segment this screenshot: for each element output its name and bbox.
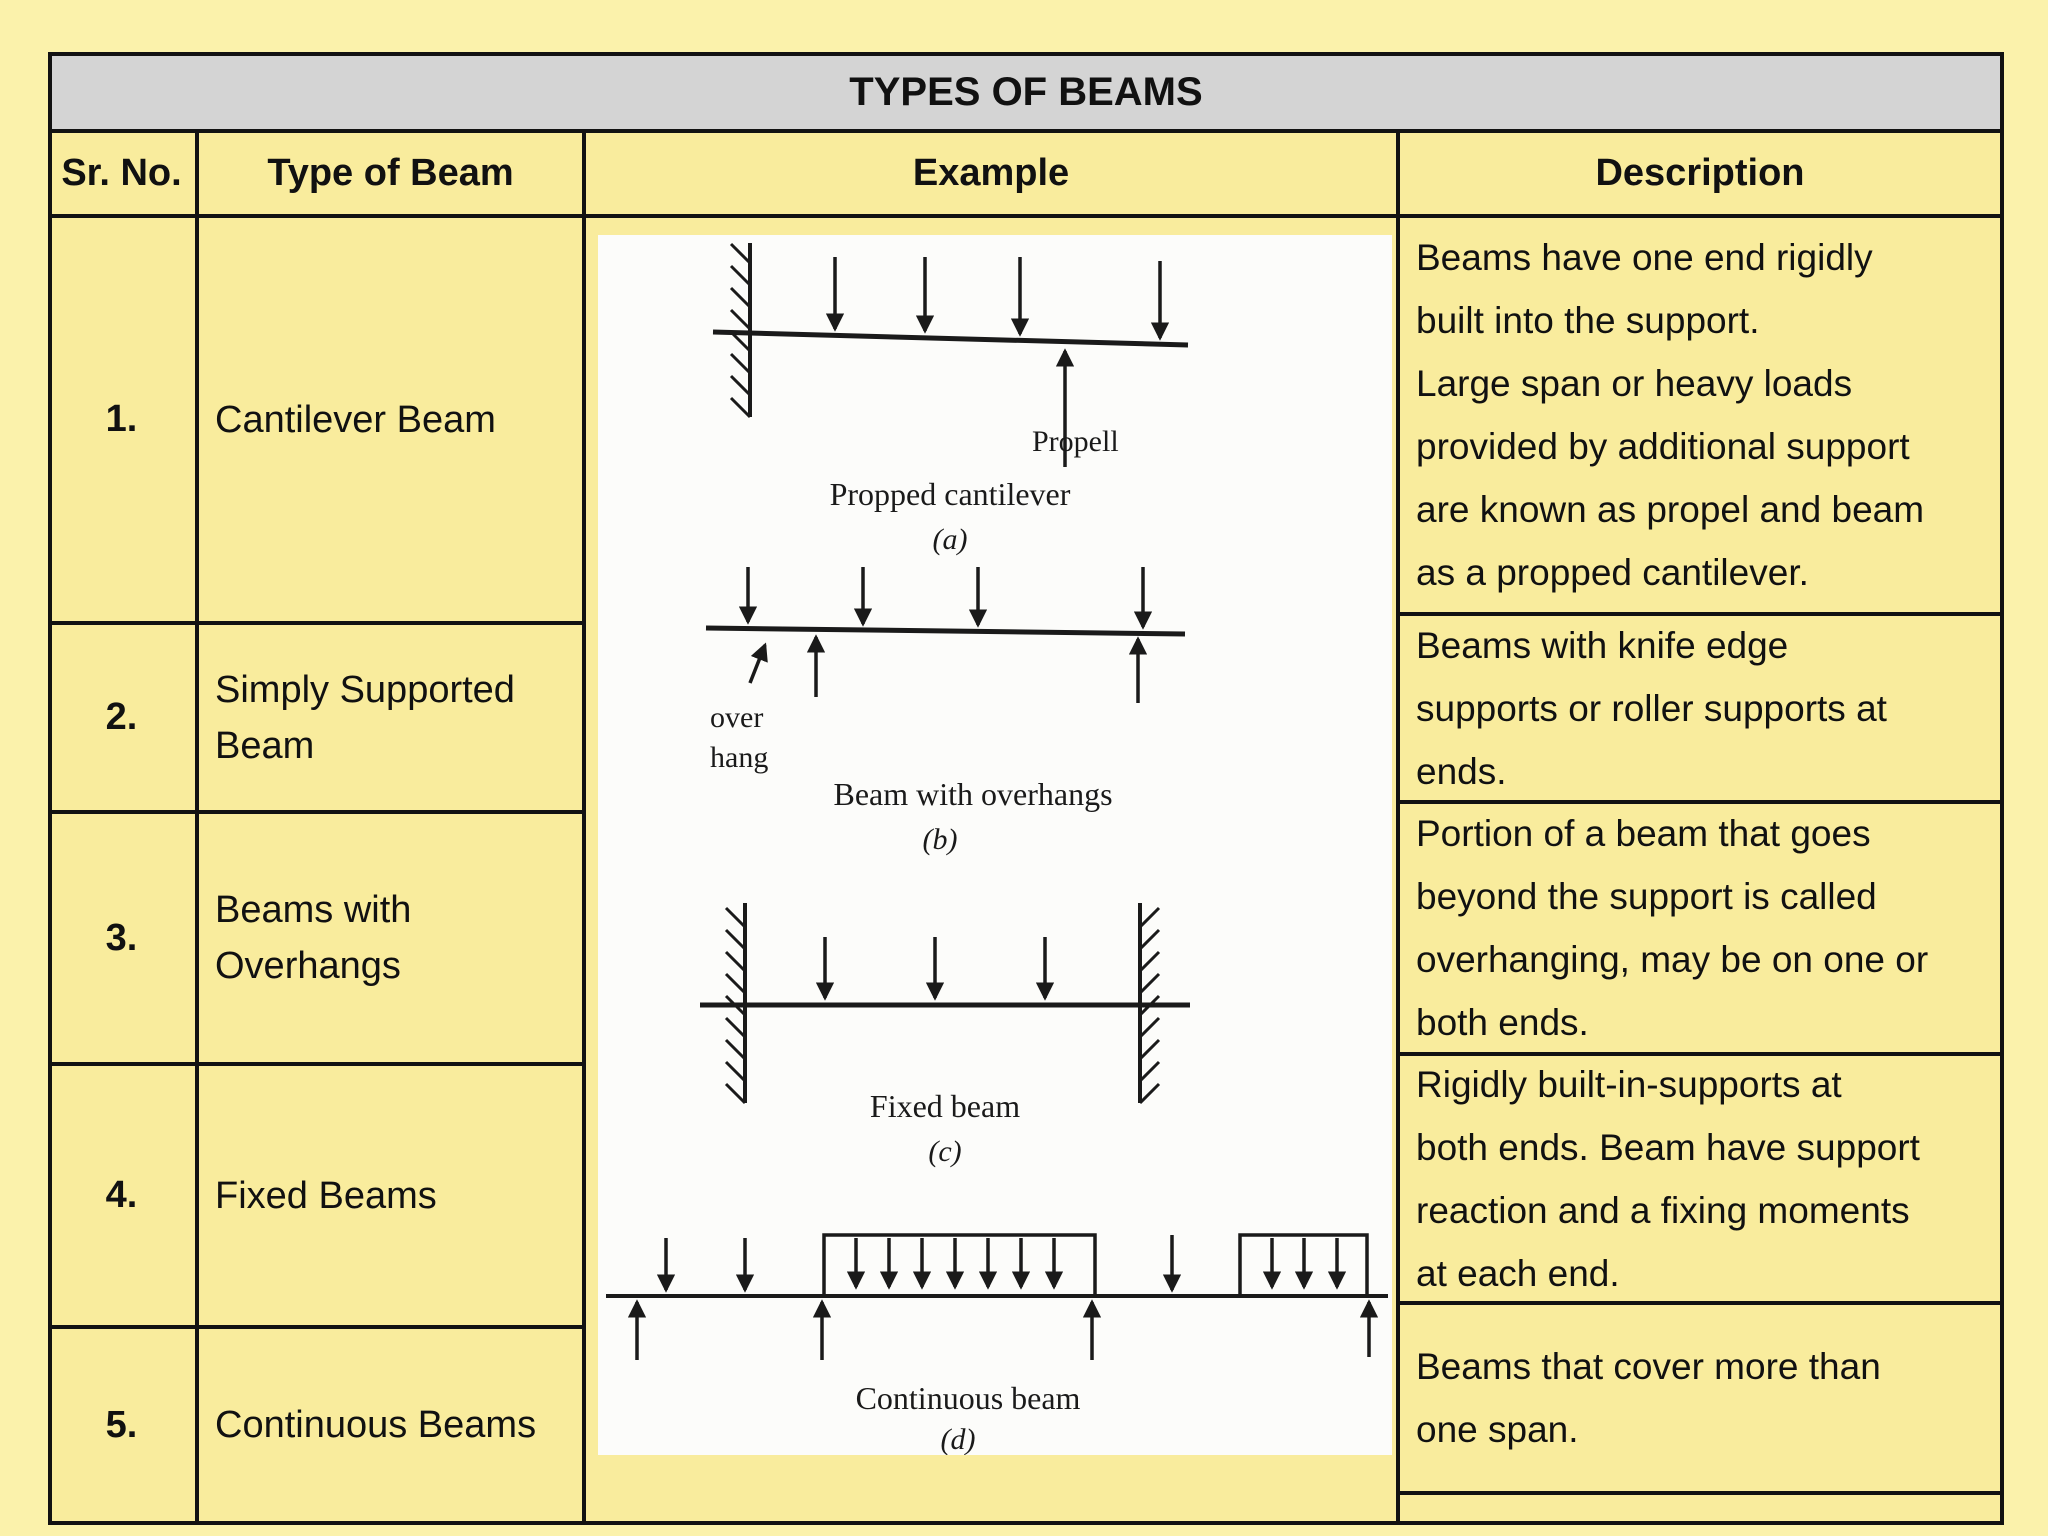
sr-no-cell-4: 4. <box>48 1066 195 1325</box>
overhang-label-line1: over <box>710 701 763 734</box>
divider-line <box>1396 612 2004 616</box>
type-cell-beams-with-overhangs: Beams with Overhangs <box>199 814 558 1062</box>
figure-a-tag: (a) <box>933 523 968 556</box>
example-figure-panel: Propell Propped cantilever (a) over hang <box>598 235 1392 1455</box>
beam-line <box>706 628 1185 634</box>
divider-line <box>48 52 52 1525</box>
sr-no-cell-2: 2. <box>48 625 195 810</box>
figure-d-caption: Continuous beam <box>856 1380 1081 1416</box>
divider-line <box>1396 1491 2004 1495</box>
divider-line <box>1396 800 2004 804</box>
sr-no-cell-3: 3. <box>48 814 195 1062</box>
support-arrows <box>637 1302 1369 1360</box>
divider-line <box>48 129 2004 133</box>
type-cell-continuous-beams: Continuous Beams <box>199 1329 558 1521</box>
table-title-bar: TYPES OF BEAMS <box>48 52 2004 133</box>
description-cell-5: Beams that cover more than one span. <box>1400 1305 1996 1491</box>
column-header-sr-no: Sr. No. <box>48 133 195 214</box>
load-arrows <box>825 937 1045 998</box>
figure-fixed-beam: Fixed beam (c) <box>700 903 1190 1168</box>
figure-d-tag: (d) <box>941 1423 976 1455</box>
figure-c-caption: Fixed beam <box>870 1088 1020 1124</box>
divider-line <box>48 214 2004 218</box>
divider-line <box>1396 129 1400 1521</box>
page-title: TYPES OF BEAMS <box>849 70 1202 115</box>
divider-line <box>582 129 586 1521</box>
divider-line <box>195 129 199 1521</box>
column-header-example: Example <box>586 133 1396 214</box>
divider-line <box>48 621 586 625</box>
divider-line <box>48 1521 2004 1525</box>
divider-line <box>1396 1301 2004 1305</box>
udl-block-2 <box>1240 1235 1367 1294</box>
udl-block-1 <box>824 1235 1095 1294</box>
column-header-description: Description <box>1400 133 2000 214</box>
figure-propped-cantilever: Propell Propped cantilever (a) <box>713 243 1188 556</box>
sr-no-cell-1: 1. <box>48 218 195 621</box>
figure-continuous-beam: Continuous beam (d) <box>606 1235 1388 1455</box>
figure-b-tag: (b) <box>923 823 958 856</box>
figure-a-caption: Propped cantilever <box>830 476 1071 512</box>
type-cell-cantilever-beam: Cantilever Beam <box>199 218 558 621</box>
page: TYPES OF BEAMS <box>0 0 2048 1536</box>
description-cell-4: Rigidly built-in-supports at both ends. … <box>1400 1056 1996 1301</box>
figure-c-tag: (c) <box>928 1135 961 1168</box>
divider-line <box>48 1325 586 1329</box>
figure-b-caption: Beam with overhangs <box>833 776 1112 812</box>
overhang-label-line2: hang <box>710 741 768 774</box>
type-cell-fixed-beams: Fixed Beams <box>199 1066 558 1325</box>
description-cell-2: Beams with knife edge supports or roller… <box>1400 616 1996 800</box>
divider-line <box>48 52 2004 56</box>
beam-line <box>713 332 1188 345</box>
prop-label: Propell <box>1032 425 1119 458</box>
figure-beam-with-overhangs: over hang Beam with overhangs (b) <box>706 567 1185 856</box>
divider-line <box>48 1062 586 1066</box>
type-cell-simply-supported: Simply Supported Beam <box>199 625 558 810</box>
description-cell-1: Beams have one end rigidly built into th… <box>1400 218 1996 612</box>
sr-no-cell-5: 5. <box>48 1329 195 1521</box>
description-cell-3: Portion of a beam that goes beyond the s… <box>1400 804 1996 1052</box>
beam-diagrams: Propell Propped cantilever (a) over hang <box>598 235 1392 1455</box>
column-header-type-of-beam: Type of Beam <box>199 133 582 214</box>
overhang-pointer-arrow <box>750 645 765 683</box>
divider-line <box>1396 1052 2004 1056</box>
divider-line <box>48 810 586 814</box>
